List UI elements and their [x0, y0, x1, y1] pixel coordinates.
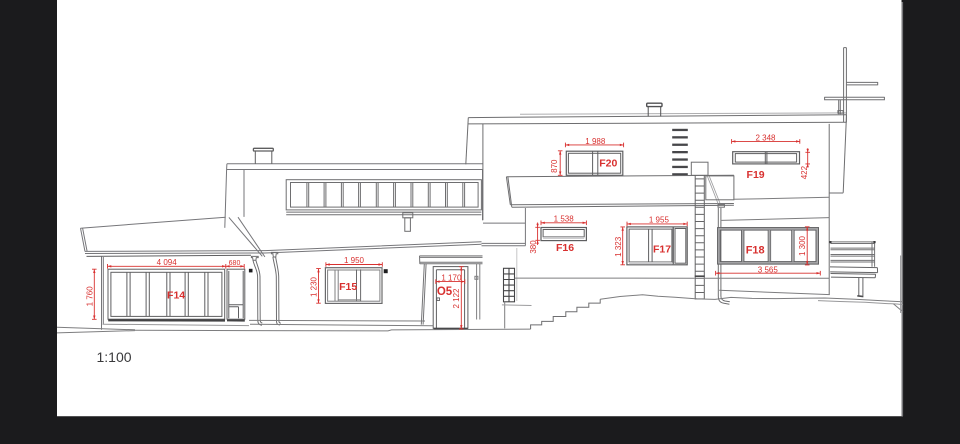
- svg-text:2 348: 2 348: [755, 133, 776, 142]
- svg-text:1 170: 1 170: [441, 273, 462, 282]
- svg-text:O5: O5: [437, 286, 453, 298]
- svg-text:380: 380: [529, 240, 538, 254]
- svg-text:F16: F16: [556, 242, 574, 254]
- svg-text:1 955: 1 955: [649, 216, 670, 225]
- svg-text:F15: F15: [339, 281, 357, 293]
- svg-text:1 988: 1 988: [585, 137, 606, 146]
- svg-text:F20: F20: [599, 157, 617, 169]
- svg-text:1 300: 1 300: [798, 235, 807, 256]
- svg-text:1 323: 1 323: [614, 236, 623, 257]
- svg-text:F19: F19: [747, 169, 765, 181]
- svg-text:1:100: 1:100: [97, 349, 132, 365]
- svg-text:4 094: 4 094: [157, 258, 178, 267]
- svg-text:870: 870: [550, 159, 559, 173]
- svg-text:F14: F14: [167, 290, 185, 302]
- svg-text:3 565: 3 565: [758, 265, 779, 274]
- svg-text:1 760: 1 760: [85, 286, 94, 307]
- svg-text:1 230: 1 230: [309, 276, 318, 297]
- svg-text:422: 422: [800, 165, 809, 179]
- svg-text:1 950: 1 950: [344, 256, 365, 265]
- svg-text:2 122: 2 122: [452, 288, 461, 309]
- svg-text:680: 680: [229, 260, 241, 267]
- svg-text:1 538: 1 538: [554, 214, 575, 223]
- svg-text:F18: F18: [746, 244, 765, 256]
- svg-text:F17: F17: [653, 243, 671, 255]
